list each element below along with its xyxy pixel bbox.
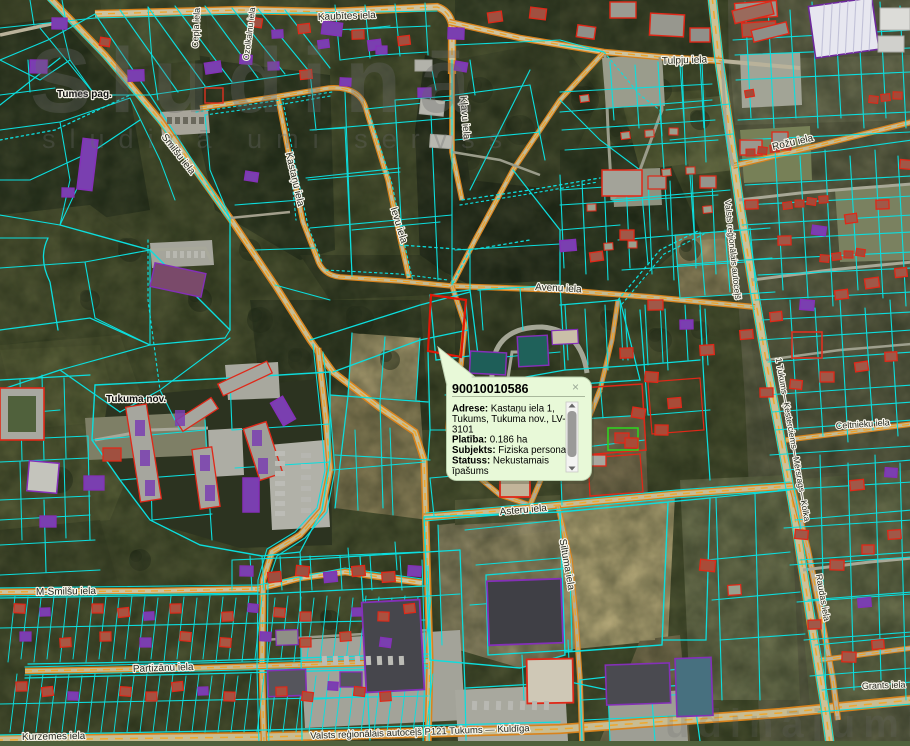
svg-text:sludinā umi servss: sludinā umi servss — [42, 124, 516, 154]
svg-text:Kurzemes iela: Kurzemes iela — [22, 731, 86, 741]
svg-text:Platība: 0.186 ha: Platība: 0.186 ha — [452, 435, 528, 446]
svg-text:×: × — [572, 380, 579, 394]
svg-text:Tukuma nov.: Tukuma nov. — [106, 394, 166, 405]
svg-text:Sludinā: Sludinā — [30, 30, 488, 132]
svg-text:90010010586: 90010010586 — [452, 382, 529, 396]
svg-text:Grants iela: Grants iela — [862, 679, 906, 691]
svg-text:3101: 3101 — [452, 424, 474, 435]
svg-text:udinājumi: udinājumi — [665, 702, 910, 741]
svg-text:Statuss: Nekustamais: Statuss: Nekustamais — [452, 456, 549, 467]
svg-text:Partizānu iela: Partizānu iela — [133, 662, 194, 675]
svg-text:M-Smilšu iela: M-Smilšu iela — [36, 586, 97, 598]
svg-text:Subjekts: Fiziska persona: Subjekts: Fiziska persona — [452, 445, 567, 456]
svg-text:īpašums: īpašums — [452, 466, 489, 477]
svg-text:Tulpju iela: Tulpju iela — [662, 54, 708, 67]
svg-text:Tukums, Tukuma nov., LV-: Tukums, Tukuma nov., LV- — [452, 414, 565, 425]
svg-text:Ķaubītes iela: Ķaubītes iela — [318, 10, 377, 23]
svg-text:Adrese: Kastaņu iela 1,: Adrese: Kastaņu iela 1, — [452, 404, 555, 415]
